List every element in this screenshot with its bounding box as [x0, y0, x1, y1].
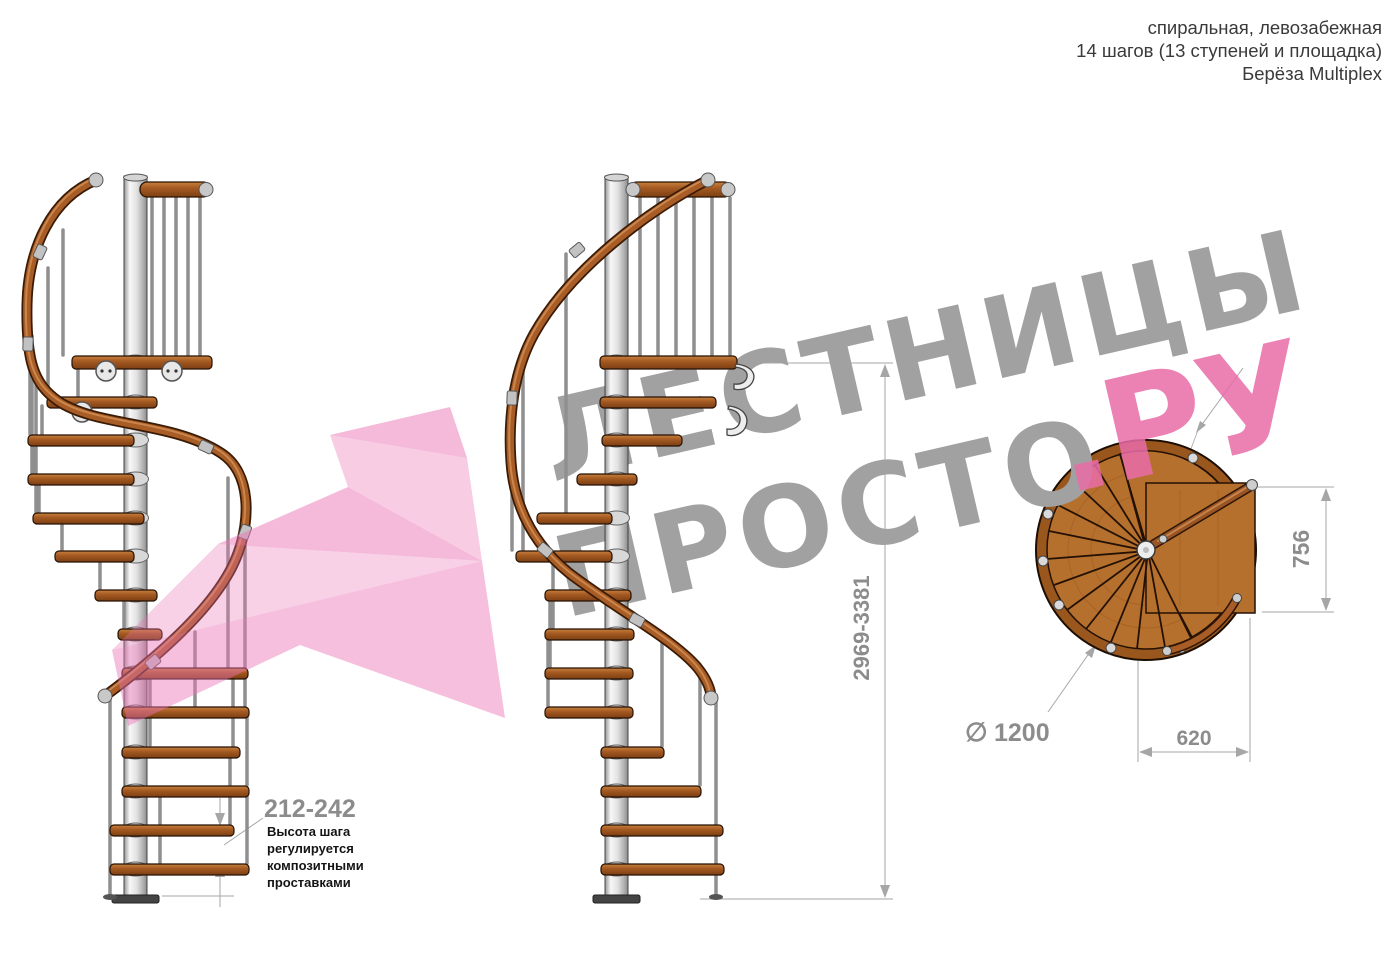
left-elevation-view [23, 173, 252, 903]
baluster-foot [103, 894, 117, 900]
pole-top-cap [605, 174, 629, 181]
diameter-symbol: ∅ [965, 717, 988, 747]
rail-end-cap [1233, 594, 1242, 603]
total-height-label: 2969-3381 [849, 575, 874, 680]
arrow-right-icon [1236, 747, 1249, 757]
plan-center-pole-hub [1143, 547, 1149, 553]
logo-arrow-shape [112, 407, 505, 726]
arrow-down-icon [880, 885, 890, 898]
diameter-label: 1200 [994, 719, 1050, 747]
staircase-drawing-canvas: ЛЕСТНИЦЫ ПРОСТО .РУ [0, 0, 1400, 956]
rail-end-cap [701, 173, 715, 187]
platform-tread [72, 356, 212, 369]
title-style-line: спиральная, левозабежная [1076, 16, 1382, 39]
pole-base-plate [112, 895, 159, 903]
arrow-left-icon [1139, 747, 1152, 757]
diameter-leader-line [1048, 652, 1090, 712]
note-line: проставками [267, 874, 364, 891]
pole-top-cap [124, 174, 148, 181]
arrow-up-icon [1321, 488, 1331, 501]
note-line: композитными [267, 857, 364, 874]
rail-end-cap [1163, 647, 1172, 656]
rail-end-cap [98, 689, 112, 703]
rail-end-cap [721, 183, 735, 197]
title-block: спиральная, левозабежная 14 шагов (13 ст… [1076, 16, 1382, 85]
rail-connector [1159, 535, 1167, 543]
title-steps-line: 14 шагов (13 ступеней и площадка) [1076, 39, 1382, 62]
platform-tread [600, 356, 737, 369]
step-height-label: 212-242 [264, 795, 356, 823]
note-line: Высота шага [267, 823, 364, 840]
pole-base-plate [593, 895, 640, 903]
drawing-svg: ЛЕСТНИЦЫ ПРОСТО .РУ [0, 0, 1400, 956]
rail-end-cap [89, 173, 103, 187]
platform-railing-rods [152, 198, 200, 355]
landing-width-label: 620 [1176, 727, 1211, 750]
title-material-line: Берёза Multiplex [1076, 62, 1382, 85]
landing-depth-label: 756 [1288, 530, 1314, 568]
baluster-foot [709, 894, 723, 900]
rail-end-cap [199, 183, 213, 197]
rail-end-cap [704, 691, 718, 705]
note-line: регулируется [267, 840, 364, 857]
platform-railing-rods [640, 198, 730, 355]
arrow-down-icon [1321, 598, 1331, 611]
arrow-down-icon [215, 813, 225, 826]
step-height-note: Высота шага регулируется композитными пр… [267, 823, 364, 891]
rail-end-cap [626, 183, 640, 197]
